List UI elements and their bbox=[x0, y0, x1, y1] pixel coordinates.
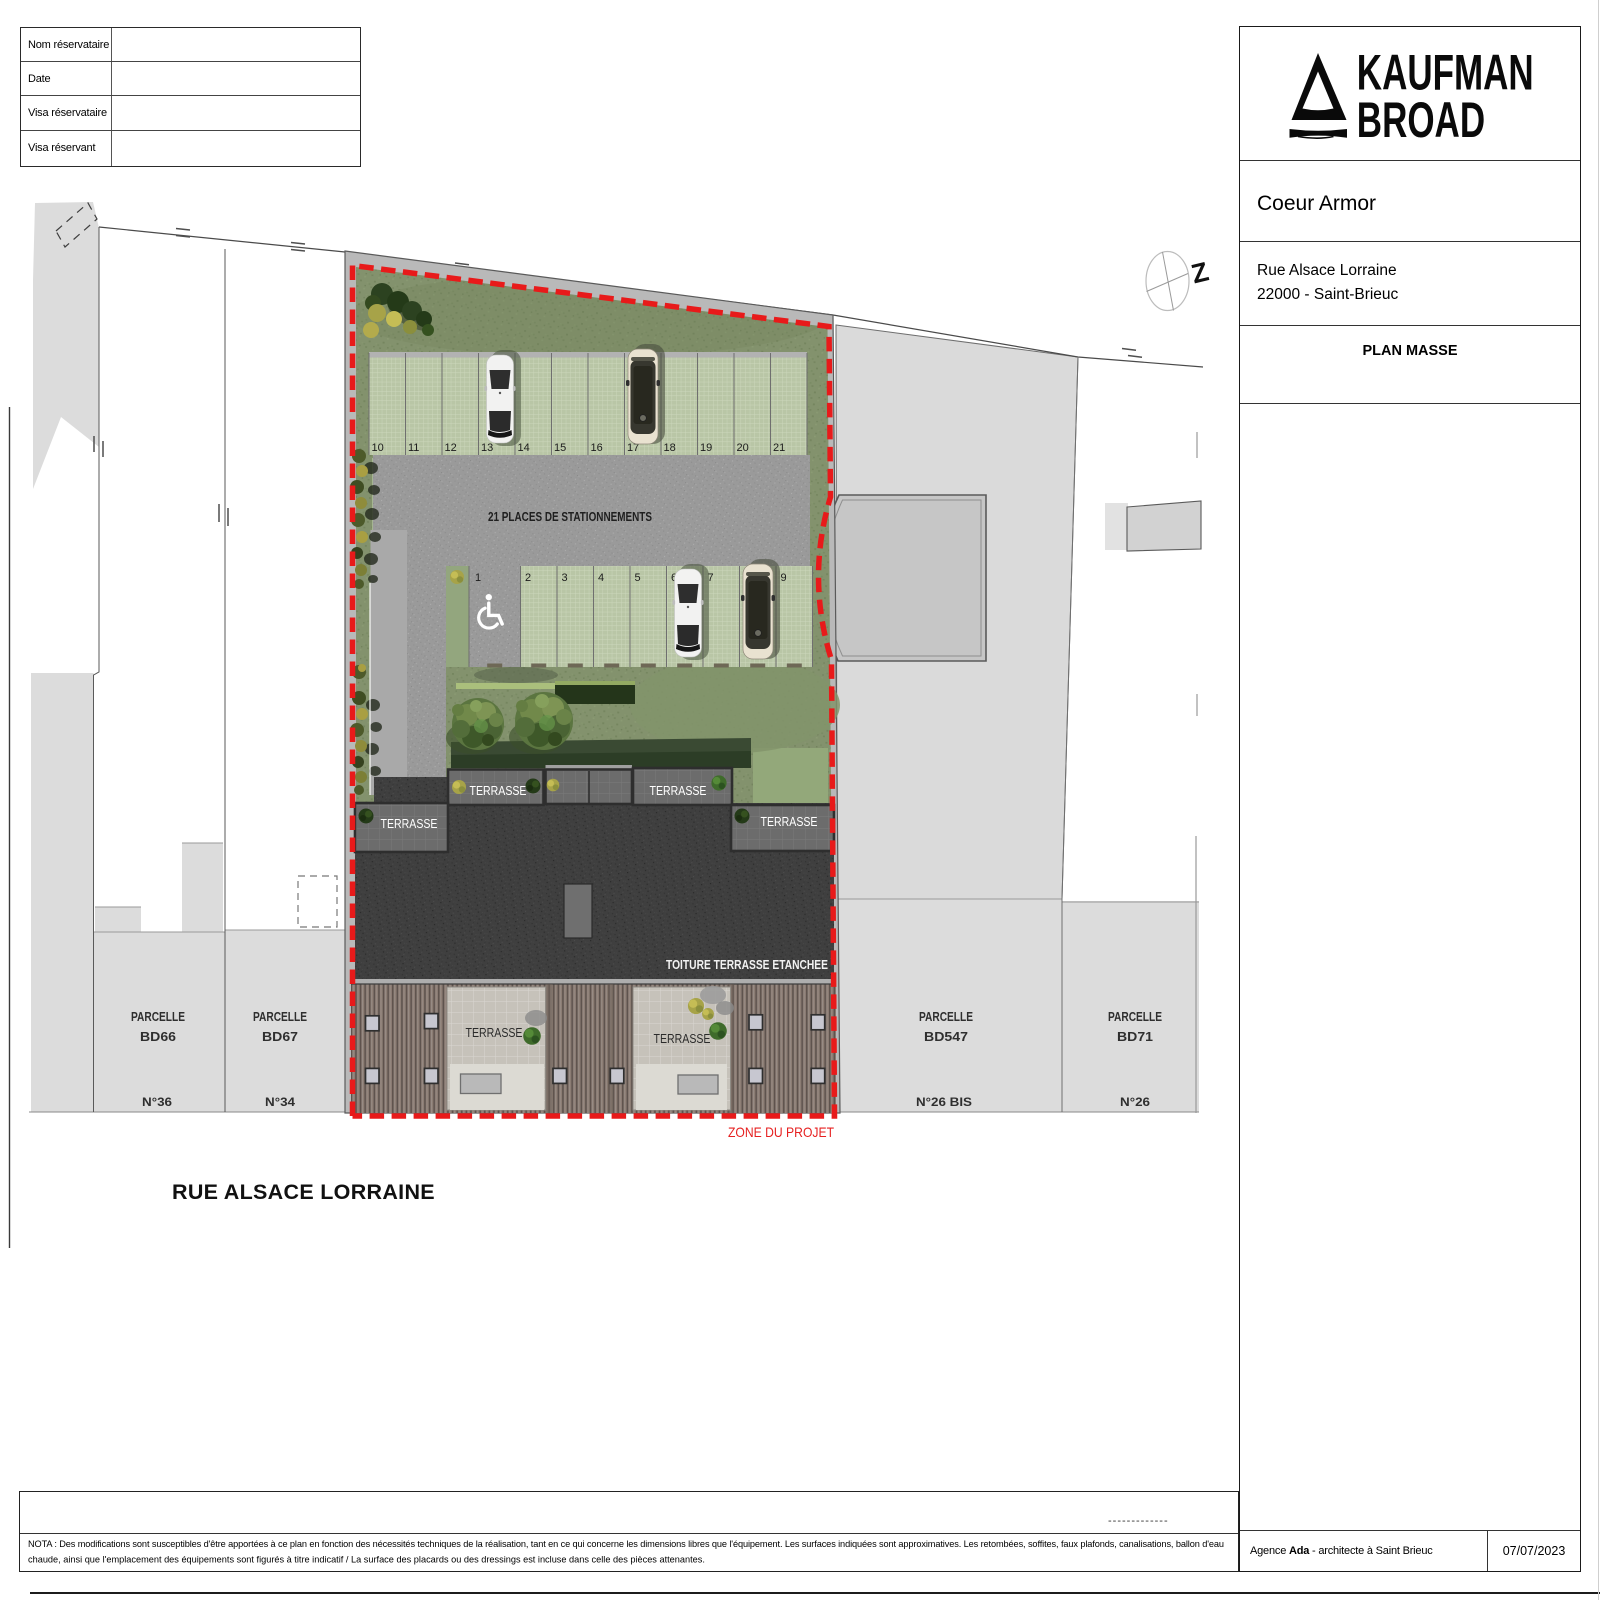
svg-text:N°26: N°26 bbox=[1120, 1095, 1150, 1109]
svg-text:PARCELLE: PARCELLE bbox=[919, 1009, 973, 1024]
svg-text:ZONE DU PROJET: ZONE DU PROJET bbox=[728, 1124, 834, 1140]
svg-text:21 PLACES DE STATIONNEMENTS: 21 PLACES DE STATIONNEMENTS bbox=[488, 510, 652, 524]
svg-text:TERRASSE: TERRASSE bbox=[650, 784, 707, 798]
svg-text:N°34: N°34 bbox=[265, 1095, 295, 1109]
svg-text:2: 2 bbox=[525, 572, 531, 584]
svg-text:20: 20 bbox=[737, 442, 749, 454]
svg-text:3: 3 bbox=[562, 572, 568, 584]
svg-text:4: 4 bbox=[598, 572, 604, 584]
svg-text:BD67: BD67 bbox=[262, 1029, 298, 1044]
svg-text:13: 13 bbox=[481, 442, 493, 454]
svg-text:TERRASSE: TERRASSE bbox=[654, 1032, 711, 1046]
svg-text:PARCELLE: PARCELLE bbox=[131, 1009, 185, 1024]
svg-text:9: 9 bbox=[781, 572, 787, 584]
svg-text:1: 1 bbox=[475, 572, 481, 584]
svg-text:RUE ALSACE LORRAINE: RUE ALSACE LORRAINE bbox=[172, 1180, 435, 1204]
svg-text:N°36: N°36 bbox=[142, 1095, 172, 1109]
svg-text:18: 18 bbox=[664, 442, 676, 454]
svg-text:PARCELLE: PARCELLE bbox=[1108, 1009, 1162, 1024]
svg-text:12: 12 bbox=[445, 442, 457, 454]
svg-text:BD547: BD547 bbox=[924, 1029, 968, 1044]
svg-text:11: 11 bbox=[408, 442, 419, 454]
svg-text:BROAD: BROAD bbox=[1357, 93, 1485, 149]
svg-text:TERRASSE: TERRASSE bbox=[466, 1026, 523, 1040]
svg-text:BD71: BD71 bbox=[1117, 1029, 1153, 1044]
svg-text:19: 19 bbox=[700, 442, 712, 454]
svg-text:BD66: BD66 bbox=[140, 1029, 176, 1044]
svg-text:5: 5 bbox=[635, 572, 641, 584]
svg-text:15: 15 bbox=[554, 442, 566, 454]
svg-text:14: 14 bbox=[518, 442, 530, 454]
svg-text:TERRASSE: TERRASSE bbox=[381, 817, 438, 831]
svg-text:21: 21 bbox=[773, 442, 785, 454]
svg-text:10: 10 bbox=[372, 442, 384, 454]
svg-text:TOITURE TERRASSE ETANCHEE: TOITURE TERRASSE ETANCHEE bbox=[666, 958, 828, 972]
svg-text:16: 16 bbox=[591, 442, 603, 454]
svg-text:chaude, ainsi que l'emplacemen: chaude, ainsi que l'emplacement des équi… bbox=[28, 1555, 705, 1565]
svg-text:N°26 BIS: N°26 BIS bbox=[916, 1095, 972, 1109]
svg-text:NOTA : Des modifications son: NOTA : Des modifications sont susceptibl… bbox=[28, 1539, 1224, 1549]
svg-text:TERRASSE: TERRASSE bbox=[470, 784, 527, 798]
svg-text:TERRASSE: TERRASSE bbox=[761, 815, 818, 829]
svg-text:PARCELLE: PARCELLE bbox=[253, 1009, 307, 1024]
